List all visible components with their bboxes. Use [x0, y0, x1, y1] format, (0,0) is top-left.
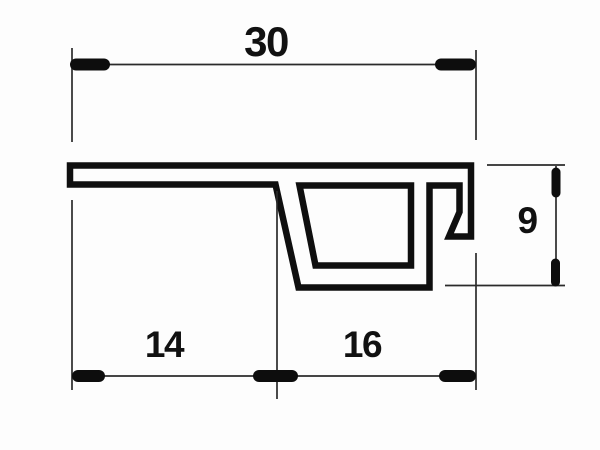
dimension-height: 9	[445, 165, 565, 286]
profile-cross-section	[70, 166, 471, 288]
dimension-label-overall-width: 30	[244, 18, 288, 65]
dimension-label-right-segment: 16	[343, 324, 382, 365]
profile-pocket-outline	[300, 186, 412, 266]
drawing-svg: 30 14 16 9	[0, 0, 600, 450]
technical-drawing: 30 14 16 9	[0, 0, 600, 450]
dimension-label-height: 9	[517, 200, 537, 241]
dimension-label-left-segment: 14	[145, 324, 185, 365]
dimension-bottom-segments: 14 16	[72, 191, 476, 399]
dimension-overall-width: 30	[72, 18, 476, 142]
